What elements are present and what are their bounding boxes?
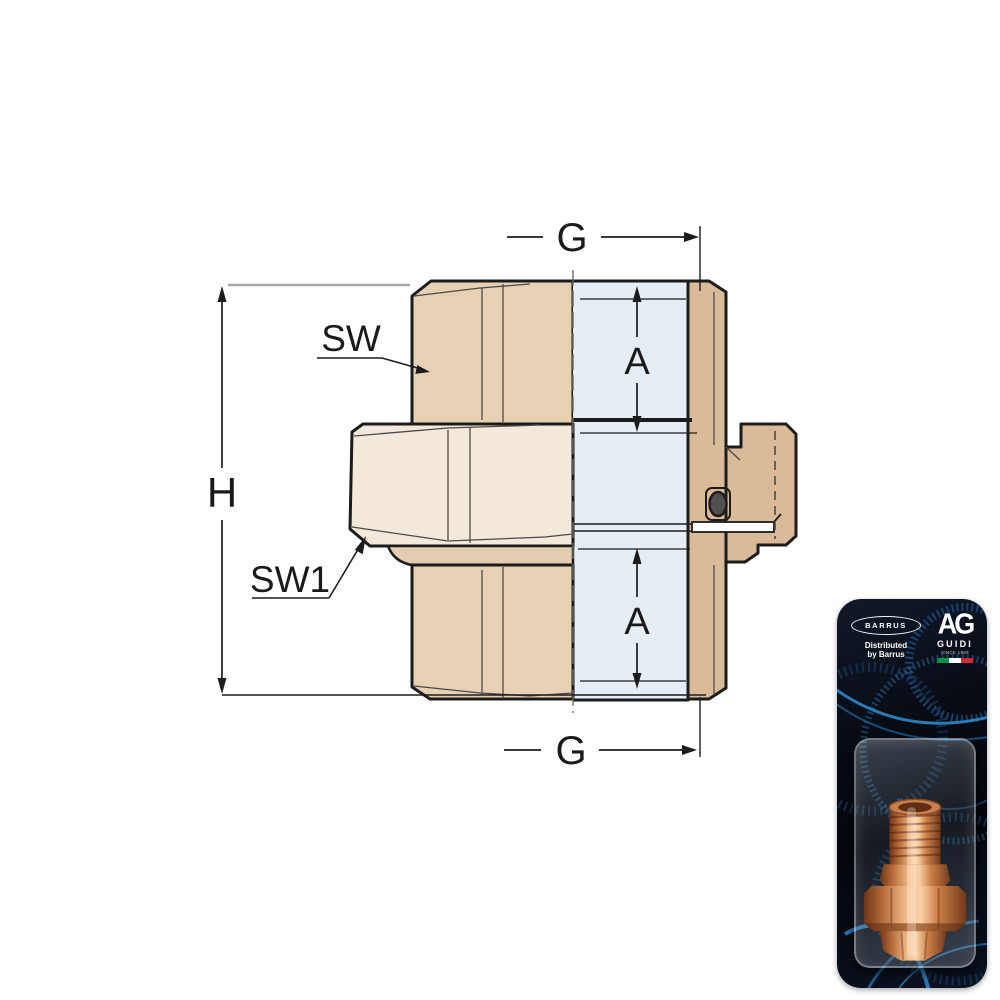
dim-a-top-label: A	[624, 341, 650, 383]
dim-g-bottom-label: G	[555, 729, 586, 773]
italian-flag-icon	[931, 658, 979, 663]
dim-h-label: H	[207, 469, 237, 516]
product-packaging-card: BARRUS Distributed by Barrus AG GUIDI SI…	[837, 599, 987, 988]
distributed-line1: Distributed	[851, 641, 921, 650]
label-sw1: SW1	[250, 559, 330, 600]
guidi-tagline-text: SINCE 1969	[935, 650, 976, 655]
bottom-hex-body	[412, 565, 573, 699]
barrus-oval-logo: BARRUS	[851, 616, 921, 635]
distributed-line2: by Barrus	[851, 650, 921, 659]
brass-union-fitting-photo	[856, 740, 974, 966]
maker-logo-block: AG GUIDI SINCE 1969	[931, 611, 979, 663]
guidi-name-text: GUIDI	[931, 639, 979, 649]
distributor-logo-block: BARRUS Distributed by Barrus	[851, 616, 921, 659]
blister-pack	[854, 738, 976, 968]
guidi-monogram-icon: AG	[931, 610, 979, 638]
top-hex-body	[412, 281, 573, 424]
tailpiece-flange-section	[726, 424, 796, 562]
dim-g-top-label: G	[556, 216, 587, 260]
product-image: G G H A	[0, 0, 1000, 1000]
union-nut-body	[350, 424, 573, 546]
label-sw: SW	[321, 318, 381, 359]
barrus-logo-text: BARRUS	[865, 621, 907, 630]
distributed-by-text: Distributed by Barrus	[851, 641, 921, 659]
dim-a-bottom-label: A	[624, 601, 650, 643]
neck-band	[373, 546, 573, 565]
dim-g-bottom	[504, 697, 700, 757]
